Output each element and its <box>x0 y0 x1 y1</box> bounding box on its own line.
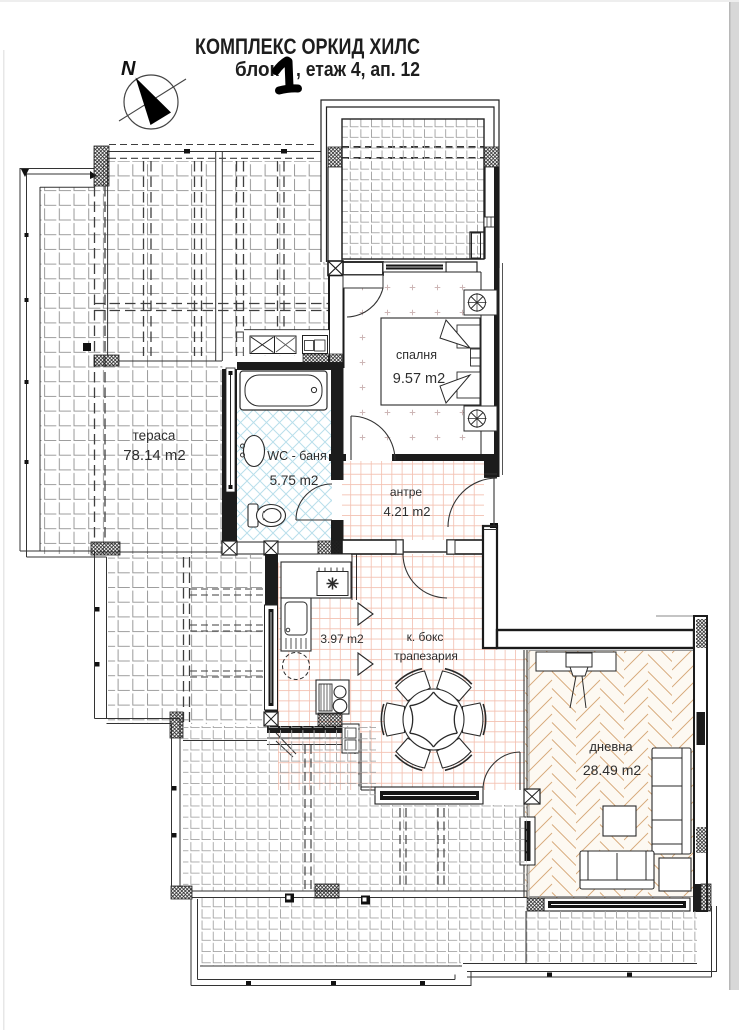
svg-text:дневна: дневна <box>589 739 633 754</box>
svg-text:трапезария: трапезария <box>394 649 458 663</box>
svg-text:78.14 m2: 78.14 m2 <box>123 447 186 464</box>
svg-text:4.21 m2: 4.21 m2 <box>384 504 431 519</box>
svg-text:КОМПЛЕКС ОРКИД ХИЛС: КОМПЛЕКС ОРКИД ХИЛС <box>195 34 420 59</box>
svg-text:N: N <box>121 58 136 80</box>
svg-text:28.49 m2: 28.49 m2 <box>583 762 642 778</box>
svg-text:тераса: тераса <box>133 428 176 443</box>
svg-text:антре: антре <box>390 485 422 499</box>
svg-text:, етаж 4, ап. 12: , етаж 4, ап. 12 <box>296 59 420 81</box>
svg-text:спалня: спалня <box>396 348 437 362</box>
svg-text:5.75 m2: 5.75 m2 <box>270 473 319 488</box>
svg-text:WC - баня: WC - баня <box>267 449 326 463</box>
svg-text:к. бокс: к. бокс <box>407 630 444 644</box>
svg-text:3.97 m2: 3.97 m2 <box>320 632 364 646</box>
svg-text:9.57 m2: 9.57 m2 <box>393 371 445 387</box>
